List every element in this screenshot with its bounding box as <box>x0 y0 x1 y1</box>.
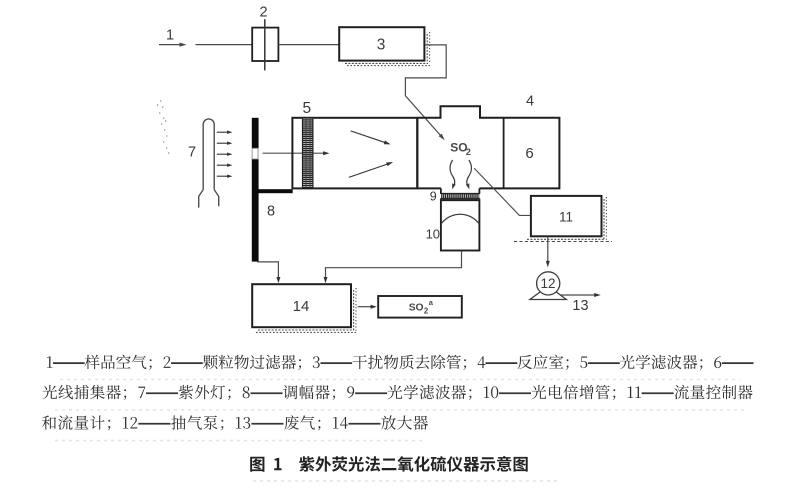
svg-text:2: 2 <box>466 147 471 157</box>
svg-text:3: 3 <box>377 37 386 54</box>
svg-text:10: 10 <box>426 227 440 242</box>
svg-text:5: 5 <box>302 100 311 117</box>
svg-text:7: 7 <box>188 144 196 160</box>
svg-text:1: 1 <box>166 27 174 43</box>
svg-text:14: 14 <box>293 298 310 315</box>
svg-text:2: 2 <box>424 306 429 315</box>
svg-text:12: 12 <box>540 276 555 291</box>
svg-text:2: 2 <box>259 5 267 21</box>
svg-text:13: 13 <box>572 298 588 314</box>
svg-text:11: 11 <box>559 210 573 225</box>
svg-text:8: 8 <box>267 204 275 220</box>
svg-text:9: 9 <box>430 189 437 203</box>
svg-text:6: 6 <box>525 145 533 162</box>
svg-text:SO: SO <box>409 302 424 313</box>
svg-text:4: 4 <box>526 94 534 110</box>
